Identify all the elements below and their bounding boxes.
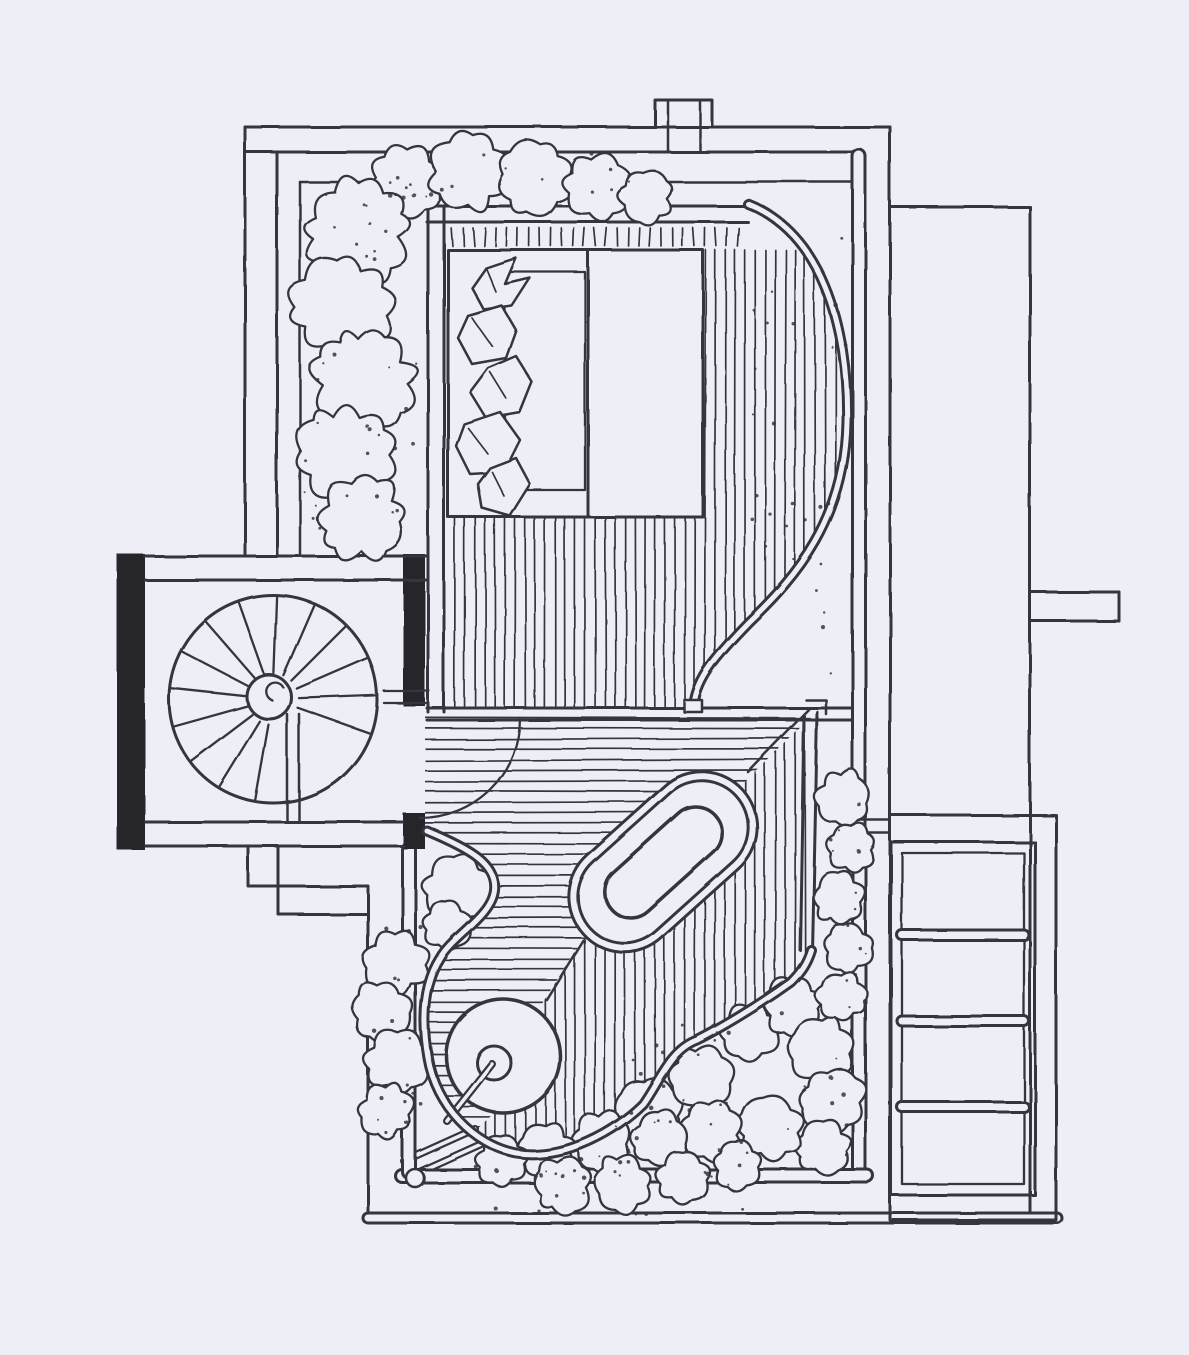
- hatch-line: [573, 228, 574, 246]
- hatch-line: [715, 228, 716, 246]
- stipple-dot: [312, 517, 315, 520]
- stipple-dot: [864, 952, 866, 954]
- stipple-dot: [815, 590, 818, 593]
- stipple-dot: [355, 243, 358, 246]
- stipple-dot: [389, 181, 392, 184]
- stipple-dot: [635, 1136, 639, 1140]
- stipple-dot: [819, 505, 823, 509]
- stipple-dot: [394, 447, 398, 451]
- stipple-dot: [849, 1006, 851, 1008]
- stipple-dot: [614, 1171, 617, 1174]
- stipple-dot: [792, 322, 795, 325]
- stipple-dot: [654, 1043, 658, 1047]
- stipple-dot: [635, 1213, 638, 1216]
- stipple-dot: [395, 509, 398, 512]
- stipple-dot: [419, 1102, 423, 1106]
- stipple-dot: [365, 205, 367, 207]
- stipple-dot: [841, 1092, 846, 1097]
- stipple-dot: [304, 459, 307, 462]
- stipple-dot: [766, 321, 769, 324]
- stipple-dot: [857, 802, 861, 806]
- stipple-dot: [482, 153, 485, 156]
- stipple-dot: [710, 1123, 713, 1126]
- stipple-dot: [304, 491, 306, 493]
- stipple-dot: [610, 188, 613, 191]
- stipple-dot: [628, 181, 630, 183]
- stipple-dot: [827, 502, 830, 505]
- stipple-dot: [845, 1153, 849, 1157]
- stipple-dot: [716, 1031, 718, 1033]
- stipple-dot: [804, 1086, 806, 1088]
- stipple-dot: [316, 377, 319, 380]
- stipple-dot: [322, 362, 324, 364]
- stipple-dot: [450, 184, 453, 187]
- stipple-dot: [582, 1192, 585, 1195]
- stipple-dot: [840, 236, 843, 239]
- stipple-dot: [632, 1059, 635, 1062]
- stipple-dot: [397, 978, 400, 981]
- stipple-dot: [619, 1175, 621, 1177]
- stipple-dot: [755, 493, 759, 497]
- stipple-dot: [844, 1123, 848, 1127]
- stipple-dot: [373, 249, 376, 252]
- stipple-dot: [746, 1151, 749, 1154]
- stipple-dot: [717, 1148, 720, 1151]
- stipple-dot: [314, 504, 316, 506]
- stipple-dot: [786, 525, 789, 528]
- stipple-dot: [786, 1127, 788, 1129]
- hatch-line: [484, 228, 485, 246]
- stipple-dot: [627, 1161, 631, 1165]
- stipple-dot: [627, 1149, 631, 1153]
- hatch-line: [715, 250, 716, 706]
- stipple-dot: [681, 1024, 684, 1027]
- stipple-dot: [687, 1108, 691, 1112]
- stipple-dot: [545, 1170, 547, 1172]
- stipple-dot: [394, 192, 397, 195]
- stipple-dot: [834, 303, 838, 307]
- stipple-dot: [384, 927, 388, 931]
- stipple-dot: [844, 343, 848, 347]
- stipple-dot: [830, 1101, 834, 1105]
- stipple-dot: [372, 257, 376, 261]
- stipple-dot: [554, 1172, 557, 1175]
- stipple-dot: [391, 511, 394, 514]
- stipple-dot: [825, 954, 828, 957]
- stipple-dot: [373, 1030, 377, 1034]
- stipple-dot: [697, 1053, 700, 1056]
- stipple-dot: [391, 1020, 395, 1024]
- stipple-dot: [792, 558, 794, 560]
- stipple-dot: [415, 363, 417, 365]
- stipple-dot: [385, 1131, 388, 1134]
- stipple-dot: [504, 167, 506, 169]
- hatch-line: [463, 228, 464, 246]
- garden-plan-sketch: [0, 0, 1189, 1355]
- stipple-dot: [537, 1209, 540, 1212]
- stipple-dot: [771, 290, 773, 292]
- stipple-dot: [409, 1037, 412, 1040]
- stipple-dot: [379, 1096, 383, 1100]
- stipple-dot: [741, 1207, 744, 1210]
- stipple-dot: [555, 1194, 559, 1198]
- stipple-dot: [599, 1156, 601, 1158]
- stipple-dot: [791, 502, 795, 506]
- hatch-line: [496, 228, 497, 246]
- stipple-dot: [653, 1121, 655, 1123]
- stipple-dot: [754, 367, 757, 370]
- stipple-dot: [618, 1115, 621, 1118]
- stipple-dot: [739, 1140, 743, 1144]
- stipple-dot: [411, 192, 416, 197]
- stipple-dot: [538, 1173, 542, 1177]
- stipple-dot: [853, 972, 856, 975]
- stipple-dot: [365, 254, 368, 257]
- stipple-dot: [395, 175, 399, 179]
- stipple-dot: [388, 193, 393, 198]
- stipple-dot: [366, 452, 369, 455]
- stipple-dot: [831, 346, 834, 349]
- stipple-dot: [495, 1169, 499, 1173]
- stipple-dot: [408, 182, 411, 185]
- corner-post: [406, 1169, 424, 1187]
- hatch-line: [506, 228, 507, 246]
- stipple-dot: [846, 924, 849, 927]
- stipple-dot: [513, 1212, 515, 1214]
- stipple-dot: [720, 1104, 723, 1107]
- stipple-dot: [378, 434, 381, 437]
- stipple-dot: [820, 563, 823, 566]
- stipple-dot: [582, 1175, 587, 1180]
- stipple-dot: [333, 353, 337, 357]
- stipple-dot: [824, 612, 826, 614]
- stipple-dot: [780, 1011, 784, 1015]
- shrub: [534, 1157, 591, 1216]
- stipple-dot: [838, 829, 840, 831]
- stipple-dot: [385, 230, 388, 233]
- stipple-dot: [656, 1119, 659, 1122]
- stipple-dot: [836, 1058, 838, 1060]
- stipple-dot: [428, 192, 432, 196]
- hatch-line: [423, 717, 820, 718]
- stipple-dot: [661, 1084, 665, 1088]
- stipple-dot: [377, 1119, 379, 1121]
- stipple-dot: [411, 442, 415, 446]
- stipple-dot: [829, 1076, 833, 1080]
- stipple-dot: [590, 190, 593, 193]
- stipple-dot: [494, 1206, 498, 1210]
- stipple-dot: [388, 366, 390, 368]
- stipple-dot: [768, 512, 771, 515]
- stipple-dot: [639, 1072, 643, 1076]
- sketch-page: [0, 0, 1189, 1355]
- stipple-dot: [832, 850, 834, 852]
- stipple-dot: [727, 1183, 729, 1185]
- stipple-dot: [368, 428, 372, 432]
- hatch-line: [423, 728, 820, 729]
- stipple-dot: [644, 1212, 648, 1216]
- stipple-dot: [615, 1126, 617, 1128]
- stipple-dot: [402, 411, 405, 414]
- stipple-dot: [365, 424, 369, 428]
- stipple-dot: [590, 152, 594, 156]
- stipple-dot: [858, 946, 861, 949]
- stipple-dot: [628, 175, 631, 178]
- stipple-dot: [407, 929, 411, 933]
- stipple-dot: [404, 186, 407, 189]
- stipple-dot: [854, 908, 856, 910]
- stipple-dot: [363, 203, 366, 206]
- stipple-dot: [750, 517, 753, 520]
- stipple-dot: [432, 166, 434, 168]
- stipple-dot: [418, 925, 422, 929]
- stipple-dot: [857, 849, 861, 853]
- stipple-dot: [346, 494, 349, 497]
- stipple-dot: [710, 1175, 712, 1177]
- stipple-dot: [765, 545, 768, 548]
- hatch-line: [649, 228, 650, 246]
- planting-box: [448, 250, 703, 517]
- stipple-dot: [474, 1165, 478, 1169]
- ink-drawing: [0, 0, 1189, 1355]
- stipple-dot: [541, 178, 544, 181]
- stipple-dot: [333, 226, 336, 229]
- curved-screen-foot: [684, 700, 702, 712]
- stipple-dot: [727, 1031, 731, 1035]
- stipple-dot: [404, 1100, 407, 1103]
- hatch-line: [639, 228, 640, 246]
- stipple-dot: [498, 182, 500, 184]
- stipple-dot: [405, 1121, 409, 1125]
- hatch-line: [561, 228, 562, 246]
- stair-room-east-wall-upper: [403, 554, 425, 706]
- stipple-dot: [401, 195, 405, 199]
- stipple-dot: [725, 1102, 728, 1105]
- stipple-dot: [752, 308, 755, 311]
- stipple-dot: [772, 421, 776, 425]
- stipple-dot: [325, 193, 327, 195]
- stipple-dot: [425, 195, 427, 197]
- stipple-dot: [821, 626, 825, 630]
- stipple-dot: [579, 1157, 583, 1161]
- stipple-dot: [845, 979, 848, 982]
- stipple-dot: [560, 1174, 564, 1178]
- stipple-dot: [412, 1092, 415, 1095]
- stipple-dot: [375, 494, 379, 498]
- stipple-dot: [804, 519, 807, 522]
- stipple-dot: [439, 187, 443, 191]
- stipple-dot: [855, 892, 857, 894]
- stipple-dot: [316, 421, 318, 423]
- stipple-dot: [752, 413, 754, 415]
- stipple-dot: [406, 1084, 409, 1087]
- stipple-dot: [609, 168, 612, 171]
- stipple-dot: [393, 977, 397, 981]
- stipple-dot: [713, 1039, 716, 1042]
- stipple-dot: [619, 1161, 623, 1165]
- stipple-dot: [573, 1169, 576, 1172]
- hatch-line: [423, 738, 820, 739]
- stipple-dot: [738, 1164, 742, 1168]
- stipple-dot: [629, 1111, 633, 1115]
- stair-room-west-wall: [117, 554, 145, 850]
- stipple-dot: [404, 406, 408, 410]
- stipple-dot: [682, 1099, 685, 1102]
- stipple-dot: [712, 1025, 716, 1029]
- stipple-dot: [705, 1171, 710, 1176]
- stipple-dot: [369, 222, 372, 225]
- stipple-dot: [829, 672, 831, 674]
- stipple-dot: [829, 838, 832, 841]
- stipple-dot: [668, 1120, 671, 1123]
- stipple-dot: [318, 526, 321, 529]
- stipple-dot: [648, 1105, 653, 1110]
- stipple-dot: [661, 1050, 665, 1054]
